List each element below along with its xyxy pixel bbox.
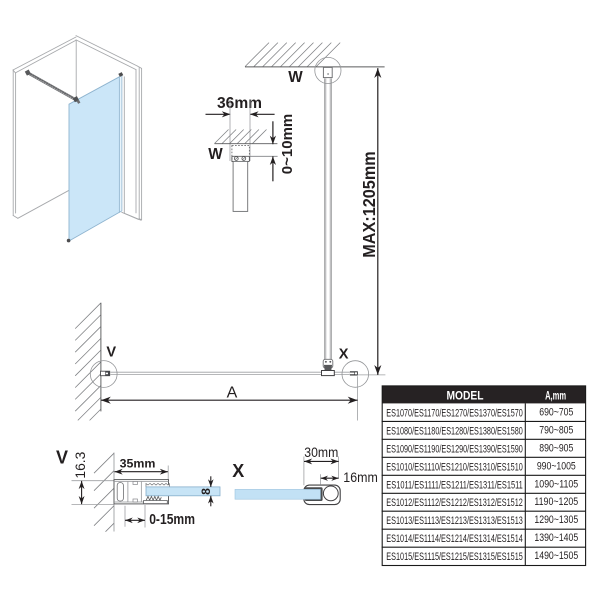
svg-text:1390~1405: 1390~1405 — [534, 532, 578, 544]
svg-text:16mm: 16mm — [343, 470, 378, 485]
svg-text:790~805: 790~805 — [539, 424, 573, 436]
svg-text:MODEL: MODEL — [447, 389, 484, 403]
svg-text:ES1070/ES1170/ES1270/ES1370/ES: ES1070/ES1170/ES1270/ES1370/ES1570 — [386, 407, 523, 419]
svg-text:1290~1305: 1290~1305 — [534, 514, 578, 526]
svg-text:0~10mm: 0~10mm — [279, 114, 296, 174]
svg-text:35mm: 35mm — [120, 456, 156, 470]
svg-text:ES1010/ES1110/ES1210/ES1310/ES: ES1010/ES1110/ES1210/ES1310/ES1510 — [386, 461, 523, 473]
svg-text:X: X — [339, 346, 349, 362]
svg-text:W: W — [288, 69, 303, 86]
svg-text:ES1011/ES1111/ES1211/ES1311/ES: ES1011/ES1111/ES1211/ES1311/ES1511 — [386, 479, 523, 491]
svg-text:ES1090/ES1190/ES1290/ES1390/ES: ES1090/ES1190/ES1290/ES1390/ES1590 — [386, 443, 523, 455]
svg-text:W: W — [208, 146, 223, 163]
svg-text:1190~1205: 1190~1205 — [534, 496, 578, 508]
svg-text:A: A — [227, 384, 238, 401]
svg-text:ES1013/ES1113/ES1213/ES1313/ES: ES1013/ES1113/ES1213/ES1313/ES1513 — [386, 515, 523, 527]
svg-text:1090~1105: 1090~1105 — [534, 478, 578, 490]
svg-text:690~705: 690~705 — [539, 406, 573, 418]
svg-text:ES1015/ES1115/ES1215/ES1315/ES: ES1015/ES1115/ES1215/ES1315/ES1515 — [386, 551, 523, 563]
svg-text:30mm: 30mm — [304, 445, 338, 460]
svg-text:ES1014/ES1114/ES1214/ES1314/ES: ES1014/ES1114/ES1214/ES1314/ES1514 — [386, 533, 523, 545]
svg-text:890~905: 890~905 — [539, 442, 573, 454]
svg-text:ES1080/ES1180/ES1280/ES1380/ES: ES1080/ES1180/ES1280/ES1380/ES1580 — [386, 425, 523, 437]
svg-text:V: V — [106, 345, 116, 361]
svg-text:ES1012/ES1112/ES1212/ES1312/ES: ES1012/ES1112/ES1212/ES1312/ES1512 — [386, 497, 523, 509]
svg-text:8: 8 — [199, 488, 213, 495]
svg-text:1490~1505: 1490~1505 — [534, 550, 578, 562]
svg-text:MAX:1205mm: MAX:1205mm — [359, 151, 379, 258]
svg-text:16.3: 16.3 — [73, 451, 88, 478]
svg-text:A,mm: A,mm — [545, 389, 566, 403]
svg-text:V: V — [56, 448, 68, 468]
svg-text:X: X — [232, 461, 244, 481]
svg-text:0-15mm: 0-15mm — [149, 512, 195, 528]
svg-text:36mm: 36mm — [217, 95, 262, 112]
svg-text:990~1005: 990~1005 — [537, 460, 576, 472]
